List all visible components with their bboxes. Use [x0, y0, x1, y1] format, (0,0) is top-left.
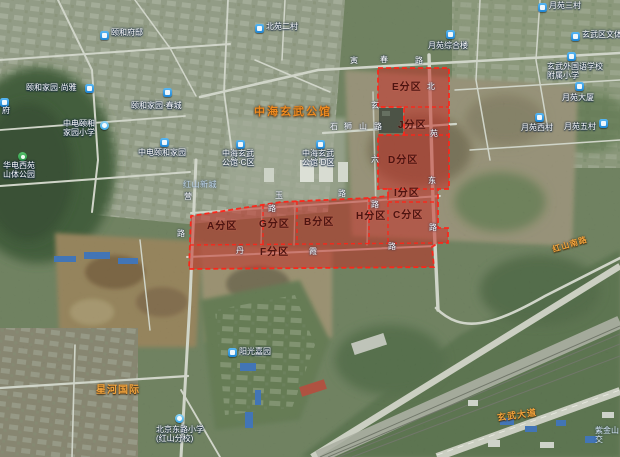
- road-name-char: 苑: [430, 130, 438, 138]
- area-label-zijinshan: 紫金山 交: [595, 426, 619, 444]
- poi-label: 府: [2, 106, 10, 115]
- blue-marker-icon: [538, 3, 547, 12]
- poi-label: 月苑综合楼: [428, 41, 468, 50]
- zone-label-a: A分区: [207, 222, 237, 232]
- road-name-char: 石: [330, 123, 338, 131]
- poi-label: 玄武区文体: [582, 30, 620, 39]
- road-name-char: 路: [388, 243, 396, 251]
- road-name-char: 玄: [371, 102, 379, 110]
- poi-label: 阳光嘉园: [239, 347, 271, 356]
- green-marker-icon: [18, 152, 27, 161]
- blue-marker-icon: [446, 30, 455, 39]
- poi-label: 中海玄武公馆·D区: [302, 149, 334, 167]
- poi-label: 玄武外国语学校附属小学: [547, 62, 603, 80]
- road-name-char: 营: [184, 193, 192, 201]
- blue-marker-icon: [85, 84, 94, 93]
- blue-marker-icon: [236, 140, 245, 149]
- poi-label: 北京东路小学(红山分校): [156, 425, 204, 443]
- school-marker-icon: [100, 121, 109, 130]
- road-name-char: 狮: [344, 123, 352, 131]
- satellite-map-viewport[interactable]: 中海玄武公馆 红山新城 紫金山 交 A分区G分区B分区H分区C分区I分区F分区E…: [0, 0, 620, 457]
- poi-label: 华电西苑山体公园: [3, 161, 35, 179]
- blue-marker-icon: [575, 82, 584, 91]
- blue-marker-icon: [316, 140, 325, 149]
- area-label-hongshan-xincheng: 红山新城: [183, 179, 217, 190]
- blue-marker-icon: [228, 348, 237, 357]
- blue-marker-icon: [255, 24, 264, 33]
- blue-marker-icon: [100, 31, 109, 40]
- road-name-char: 路: [177, 230, 185, 238]
- blue-marker-icon: [535, 113, 544, 122]
- area-label-line2: 交: [595, 435, 603, 444]
- road-name-char: 路: [415, 57, 423, 65]
- zone-label-f: F分区: [260, 248, 289, 258]
- landmark-label-zhonghai-xuanwu: 中海玄武公馆: [254, 103, 332, 119]
- zone-label-h: H分区: [356, 212, 386, 222]
- poi-label: 颐和府邸: [111, 28, 143, 37]
- zone-label-g: G分区: [259, 220, 290, 230]
- blue-marker-icon: [567, 52, 576, 61]
- road-name-char: 山: [359, 123, 367, 131]
- zone-label-j: J分区: [398, 121, 427, 131]
- road-name-char: 路: [268, 205, 276, 213]
- poi-label: 颐和家园·尚雅: [26, 83, 77, 92]
- road-name-label: 星河国际: [96, 381, 140, 396]
- poi-label: 中海玄武公馆·C区: [222, 149, 254, 167]
- zone-label-b: B分区: [304, 218, 334, 228]
- area-label-line1: 紫金山: [595, 426, 619, 435]
- road-name-char: 春: [380, 56, 388, 64]
- poi-label: 中电颐和家园小学: [63, 119, 95, 137]
- poi-label: 颐和家园·春城: [131, 101, 182, 110]
- zone-label-c: C分区: [393, 211, 423, 221]
- poi-label: 月苑三村: [549, 1, 581, 10]
- blue-marker-icon: [571, 32, 580, 41]
- road-name-char: 路: [371, 201, 379, 209]
- road-name-char: 东: [428, 177, 436, 185]
- road-name-char: 北: [427, 83, 435, 91]
- zone-label-e: E分区: [392, 83, 422, 93]
- road-name-char: 寅: [350, 57, 358, 65]
- poi-label: 中电颐和家园: [138, 148, 186, 157]
- road-name-char: 路: [374, 123, 382, 131]
- zone-label-d: D分区: [388, 156, 418, 166]
- blue-marker-icon: [160, 138, 169, 147]
- road-name-char: 玉: [275, 192, 283, 200]
- poi-label: 北苑二村: [266, 22, 298, 31]
- road-name-char: 路: [338, 190, 346, 198]
- poi-label: 月苑大厦: [562, 93, 594, 102]
- blue-marker-icon: [163, 88, 172, 97]
- poi-label: 月苑五村: [564, 122, 596, 131]
- school-marker-icon: [175, 414, 184, 423]
- satellite-basemap: [0, 0, 620, 457]
- zone-label-i: I分区: [394, 189, 420, 199]
- road-name-char: 六: [371, 156, 379, 164]
- poi-label: 月苑西村: [521, 123, 553, 132]
- road-name-char: 路: [429, 224, 437, 232]
- road-name-char: 霞: [309, 248, 317, 256]
- road-name-char: 丹: [236, 247, 244, 255]
- blue-marker-icon: [599, 119, 608, 128]
